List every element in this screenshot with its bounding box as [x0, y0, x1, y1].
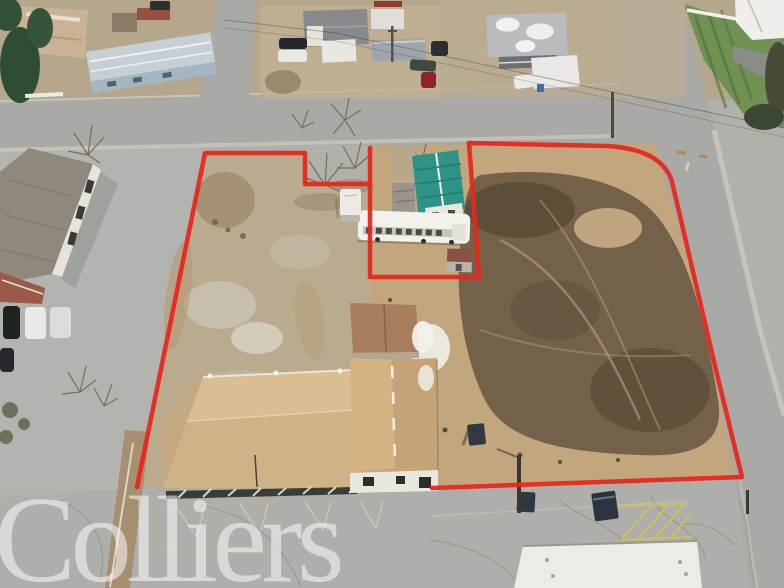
tall-roof-west-slope [350, 358, 395, 472]
light-patch [270, 234, 330, 270]
front-window [396, 476, 405, 484]
roof-vent-dot [545, 558, 549, 562]
debris [443, 428, 448, 433]
roof-vent [274, 371, 279, 376]
light-patch [184, 281, 256, 329]
bus-window [416, 229, 422, 235]
bus-window [406, 229, 412, 235]
white-car [278, 50, 307, 62]
bushes [744, 104, 784, 130]
dirt-patch [195, 172, 255, 228]
utility-pole-corner [746, 490, 749, 514]
parked-white-car [25, 307, 46, 339]
dumpster-body [591, 490, 619, 521]
aerial-photo: Colliers [0, 0, 784, 588]
parked-silver-car [50, 307, 71, 338]
dark-soil-blob [590, 348, 710, 432]
debris [388, 298, 392, 302]
gray-deck [392, 183, 415, 214]
shed-door [456, 264, 462, 271]
roof-vent-dot [678, 560, 682, 564]
aerial-scene [0, 0, 784, 588]
bus-window [386, 228, 392, 234]
bus-window [396, 228, 402, 234]
dark-suv [279, 38, 307, 49]
shed [112, 13, 137, 32]
utility-pole [611, 92, 614, 138]
bus-window [376, 228, 382, 234]
snow-patch [418, 365, 434, 391]
bus-cab [452, 223, 467, 240]
bus-window [426, 229, 432, 235]
dumpster-2 [591, 490, 619, 521]
roof-gap-strip [352, 352, 419, 359]
shrub [18, 418, 30, 430]
red-car [421, 72, 436, 88]
tall-roof-east-edge [437, 360, 438, 470]
blue-bin [537, 84, 544, 92]
shrub-dot [240, 233, 246, 239]
truck-cab [341, 215, 360, 222]
shed-building [447, 249, 473, 273]
evergreen-tree [27, 8, 53, 48]
white-roof-building [514, 541, 702, 588]
front-door [419, 477, 431, 488]
parked-dark-car [0, 348, 14, 372]
truck-box [340, 189, 361, 216]
bus-window [436, 230, 442, 236]
roof-vent-dot [551, 574, 555, 578]
parked-suv [3, 306, 20, 339]
light-patch [231, 322, 283, 354]
white-bus [357, 210, 470, 245]
shrub [2, 402, 18, 418]
roof-vent [338, 369, 343, 374]
house-wall [307, 26, 323, 46]
red-fence [374, 1, 402, 7]
snow-patch [412, 321, 434, 353]
shrub-dot [212, 219, 218, 225]
truck-roof-seam [344, 195, 357, 196]
white-garage [321, 39, 356, 63]
shed-roof [447, 249, 472, 263]
roof-vent-dot [684, 572, 688, 576]
dark-soil-blob [465, 182, 575, 238]
roof-vent [208, 374, 213, 379]
shrub [265, 70, 301, 94]
white-garage-2 [371, 9, 404, 29]
parked-car [150, 1, 170, 10]
dark-soil-blob [510, 280, 600, 340]
debris [558, 460, 562, 464]
white-car-2 [513, 74, 535, 90]
shrub-dot [226, 228, 231, 233]
light-dirt-hole [574, 208, 642, 248]
front-window [363, 477, 374, 486]
debris [616, 458, 620, 462]
pole-crossarm [388, 30, 397, 32]
